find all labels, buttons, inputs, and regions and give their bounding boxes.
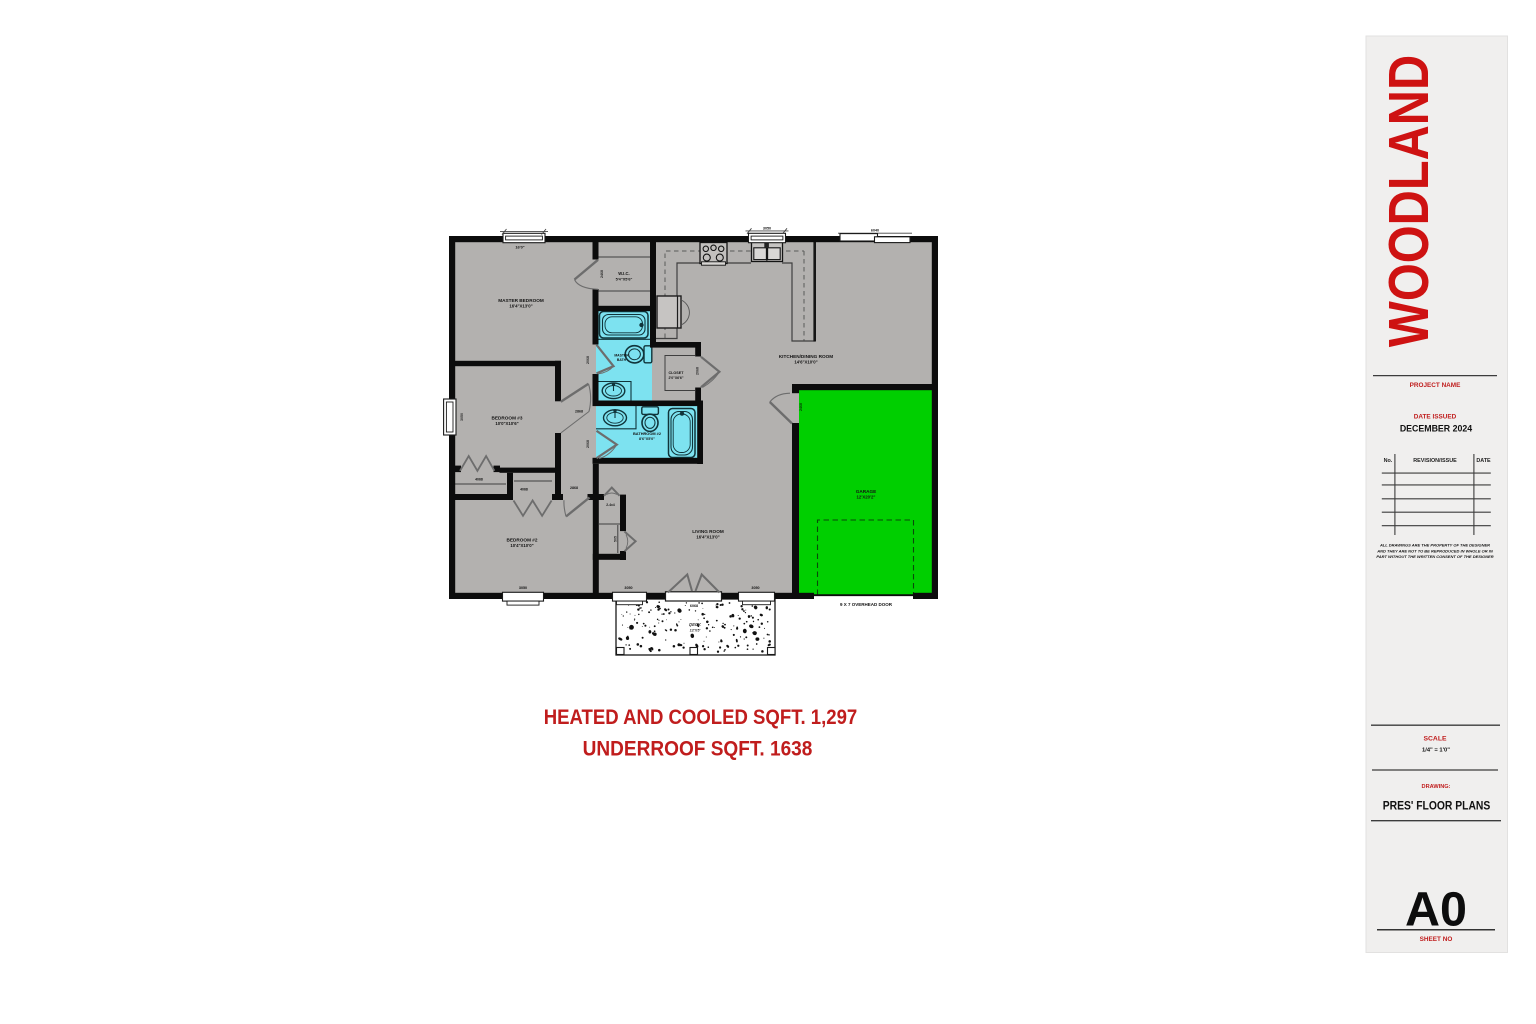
svg-text:4068: 4068 xyxy=(520,488,528,492)
svg-text:2'0"X6'6": 2'0"X6'6" xyxy=(668,376,683,380)
svg-text:2468: 2468 xyxy=(799,403,803,411)
svg-text:3050: 3050 xyxy=(624,586,632,590)
svg-text:5'4"X5'6": 5'4"X5'6" xyxy=(616,276,633,281)
svg-text:No.: No. xyxy=(1384,458,1393,464)
svg-text:LIVING ROOM: LIVING ROOM xyxy=(692,529,724,534)
svg-text:16'4"X13'0": 16'4"X13'0" xyxy=(696,535,719,540)
svg-text:BEDROOM #2: BEDROOM #2 xyxy=(507,538,538,543)
svg-text:GARAGE: GARAGE xyxy=(856,489,877,494)
svg-text:6068: 6068 xyxy=(690,604,698,608)
svg-text:KITCHEN/DINING ROOM: KITCHEN/DINING ROOM xyxy=(779,354,834,359)
svg-text:12'X20'2": 12'X20'2" xyxy=(857,495,876,500)
svg-text:UNDERROOF SQFT. 1638: UNDERROOF SQFT. 1638 xyxy=(583,737,813,760)
svg-text:BATH: BATH xyxy=(617,358,627,362)
svg-text:DRAWING:: DRAWING: xyxy=(1422,784,1451,790)
svg-text:2868: 2868 xyxy=(570,486,578,490)
svg-text:10'4"X10'0": 10'4"X10'0" xyxy=(510,543,533,548)
svg-text:AND THEY ARE NOT TO BE REPRODU: AND THEY ARE NOT TO BE REPRODUCED IN WHO… xyxy=(1376,548,1493,553)
svg-text:HEATED AND COOLED SQFT. 1,297: HEATED AND COOLED SQFT. 1,297 xyxy=(544,706,858,729)
svg-text:DECK: DECK xyxy=(689,622,702,627)
svg-text:3050: 3050 xyxy=(460,413,464,421)
svg-text:REVISION/ISSUE: REVISION/ISSUE xyxy=(1413,458,1457,464)
svg-text:MASTER: MASTER xyxy=(614,354,629,358)
svg-text:2-4x4: 2-4x4 xyxy=(606,503,615,507)
svg-text:MASTER BEDROOM: MASTER BEDROOM xyxy=(498,298,544,303)
svg-text:2868: 2868 xyxy=(575,410,583,414)
svg-text:BATHROOM #2: BATHROOM #2 xyxy=(633,431,662,436)
svg-text:PRES' FLOOR PLANS: PRES' FLOOR PLANS xyxy=(1383,800,1491,813)
svg-text:CLOSET: CLOSET xyxy=(669,371,685,375)
svg-text:9 X 7 OVERHEAD DOOR: 9 X 7 OVERHEAD DOOR xyxy=(840,602,893,607)
svg-text:SCALE: SCALE xyxy=(1423,736,1447,743)
svg-text:DATE: DATE xyxy=(1476,458,1491,464)
svg-text:BEDROOM #3: BEDROOM #3 xyxy=(492,416,523,421)
svg-text:SHEET NO: SHEET NO xyxy=(1420,936,1453,943)
svg-text:DECEMBER 2024: DECEMBER 2024 xyxy=(1400,424,1472,434)
svg-text:PROJECT NAME: PROJECT NAME xyxy=(1410,382,1462,389)
svg-text:14'6"X10'0": 14'6"X10'0" xyxy=(794,360,817,365)
svg-text:3050: 3050 xyxy=(763,226,771,230)
svg-text:4068: 4068 xyxy=(475,478,483,482)
svg-text:3050: 3050 xyxy=(751,586,759,590)
svg-text:1/4" = 1'0": 1/4" = 1'0" xyxy=(1422,748,1450,754)
svg-text:PART WITHOUT THE WRITTEN CONSE: PART WITHOUT THE WRITTEN CONSENT OF THE … xyxy=(1376,554,1493,559)
svg-text:WOODLAND: WOODLAND xyxy=(1377,55,1440,347)
svg-text:16'0": 16'0" xyxy=(515,245,524,250)
svg-text:2068: 2068 xyxy=(586,440,590,448)
svg-text:DATE ISSUED: DATE ISSUED xyxy=(1414,414,1457,421)
svg-text:16'4"X13'0": 16'4"X13'0" xyxy=(509,304,532,309)
svg-text:505: 505 xyxy=(613,536,617,542)
svg-text:ALL DRAWINGS ARE THE PROPERTY: ALL DRAWINGS ARE THE PROPERTY OF THE DES… xyxy=(1379,543,1490,548)
svg-text:12'X5': 12'X5' xyxy=(690,629,701,633)
svg-text:6040: 6040 xyxy=(871,228,879,232)
svg-text:A0: A0 xyxy=(1405,883,1467,937)
svg-text:2468: 2468 xyxy=(600,270,604,278)
svg-text:10'0"X10'6": 10'0"X10'6" xyxy=(495,421,518,426)
svg-text:8'6"X5'0": 8'6"X5'0" xyxy=(639,437,655,441)
svg-text:2068: 2068 xyxy=(586,356,590,364)
svg-text:W.I.C.: W.I.C. xyxy=(618,271,629,276)
svg-text:3050: 3050 xyxy=(519,586,527,590)
svg-text:2068: 2068 xyxy=(695,367,699,375)
